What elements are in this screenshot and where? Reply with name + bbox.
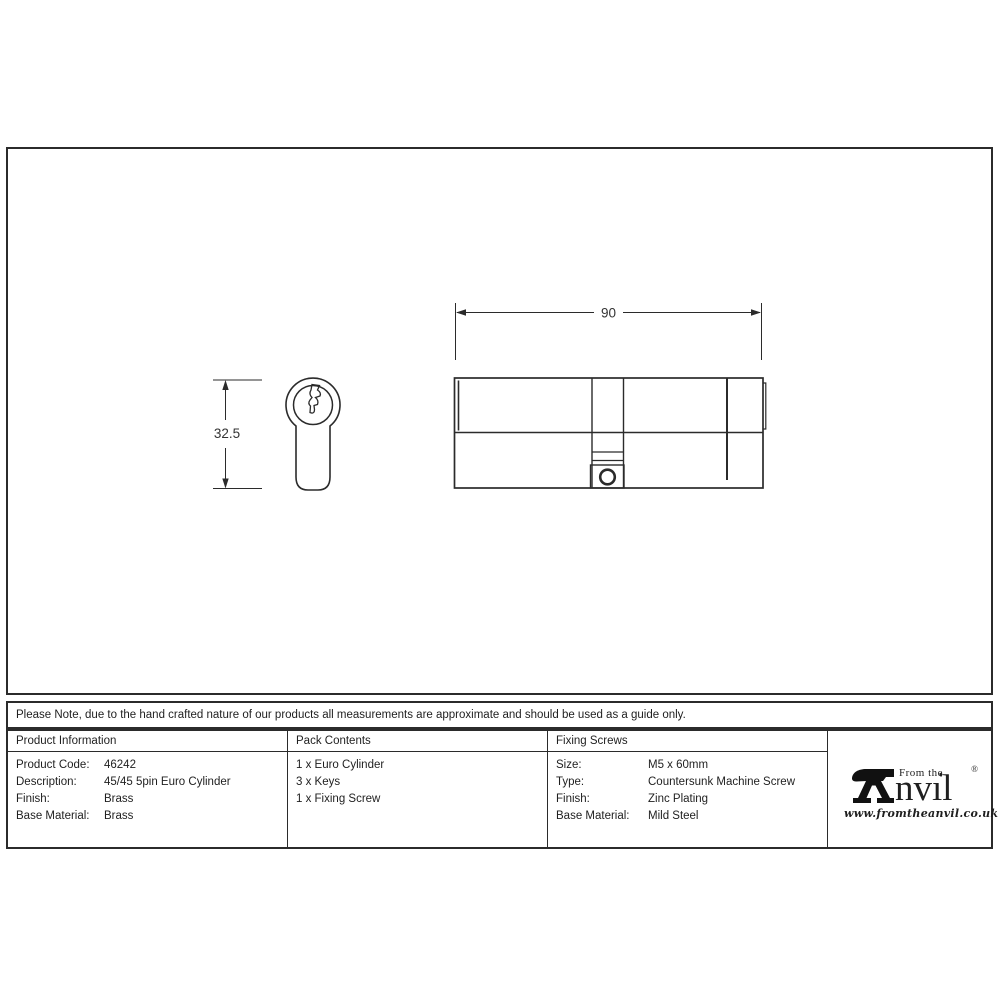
product-information-column: Product Information Product Code: 46242 … [8, 731, 287, 847]
table-row: Size: M5 x 60mm [556, 757, 827, 774]
fixing-screws-header: Fixing Screws [548, 731, 827, 752]
row-label: Size: [556, 757, 648, 774]
brand-column: From the ♦ nvıl ® www.fromtheanvil.co.uk [827, 731, 991, 847]
spec-table: Product Information Product Code: 46242 … [6, 729, 993, 849]
measurement-note-text: Please Note, due to the hand crafted nat… [16, 709, 686, 721]
table-row: Product Code: 46242 [16, 757, 287, 774]
table-row: Base Material: Brass [16, 808, 287, 825]
list-item: 1 x Euro Cylinder [296, 757, 547, 774]
row-label: Base Material: [16, 808, 104, 825]
fixing-screws-body: Size: M5 x 60mm Type: Countersunk Machin… [548, 752, 827, 825]
row-value: 45/45 5pin Euro Cylinder [104, 774, 231, 791]
registered-trademark-symbol: ® [971, 764, 978, 774]
from-the-anvil-logo: From the ♦ nvıl ® www.fromtheanvil.co.uk [850, 764, 978, 820]
list-item: 1 x Fixing Screw [296, 791, 547, 808]
logo-brand-text: nvıl [895, 771, 953, 807]
row-value: Mild Steel [648, 808, 699, 825]
row-value: M5 x 60mm [648, 757, 708, 774]
fixing-screws-column: Fixing Screws Size: M5 x 60mm Type: Coun… [547, 731, 827, 847]
row-value: Brass [104, 808, 133, 825]
row-label: Finish: [16, 791, 104, 808]
row-value: Countersunk Machine Screw [648, 774, 795, 791]
table-row: Finish: Brass [16, 791, 287, 808]
row-label: Finish: [556, 791, 648, 808]
row-label: Base Material: [556, 808, 648, 825]
table-row: Base Material: Mild Steel [556, 808, 827, 825]
pack-contents-header: Pack Contents [288, 731, 547, 752]
measurement-note-bar: Please Note, due to the hand crafted nat… [6, 701, 993, 729]
row-label: Type: [556, 774, 648, 791]
row-value: Zinc Plating [648, 791, 708, 808]
pack-contents-column: Pack Contents 1 x Euro Cylinder 3 x Keys… [287, 731, 547, 847]
row-label: Description: [16, 774, 104, 791]
table-row: Type: Countersunk Machine Screw [556, 774, 827, 791]
row-label: Product Code: [16, 757, 104, 774]
row-value: 46242 [104, 757, 136, 774]
pack-contents-body: 1 x Euro Cylinder 3 x Keys 1 x Fixing Sc… [288, 752, 547, 808]
table-row: Finish: Zinc Plating [556, 791, 827, 808]
product-information-body: Product Code: 46242 Description: 45/45 5… [8, 752, 287, 825]
table-row: Description: 45/45 5pin Euro Cylinder [16, 774, 287, 791]
row-value: Brass [104, 791, 133, 808]
list-item: 3 x Keys [296, 774, 547, 791]
spec-sheet: 32.5 90 Please Note, due to the hand cra… [0, 0, 1000, 1000]
drawing-frame [6, 147, 993, 695]
logo-website-text: www.fromtheanvil.co.uk [844, 807, 988, 820]
anvil-icon [850, 767, 896, 805]
product-information-header: Product Information [8, 731, 287, 752]
